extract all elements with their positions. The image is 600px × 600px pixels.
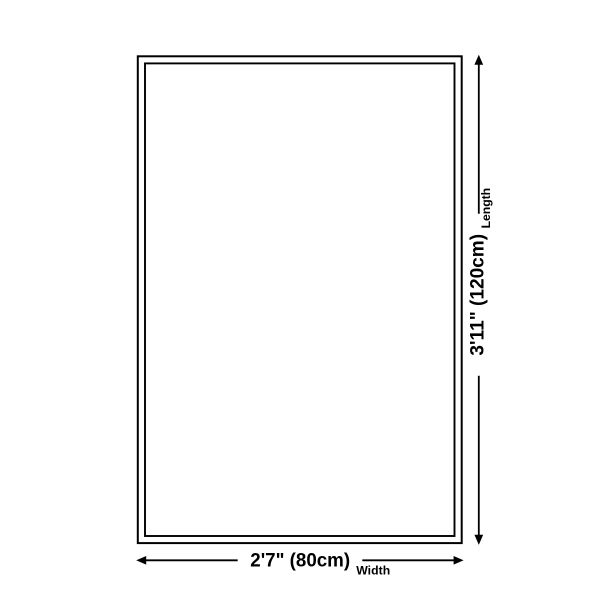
svg-text:2'7" (80cm): 2'7" (80cm) <box>250 550 350 571</box>
svg-text:Width: Width <box>356 564 390 578</box>
svg-text:3'11" (120cm): 3'11" (120cm) <box>468 234 489 356</box>
svg-text:Length: Length <box>479 188 493 229</box>
